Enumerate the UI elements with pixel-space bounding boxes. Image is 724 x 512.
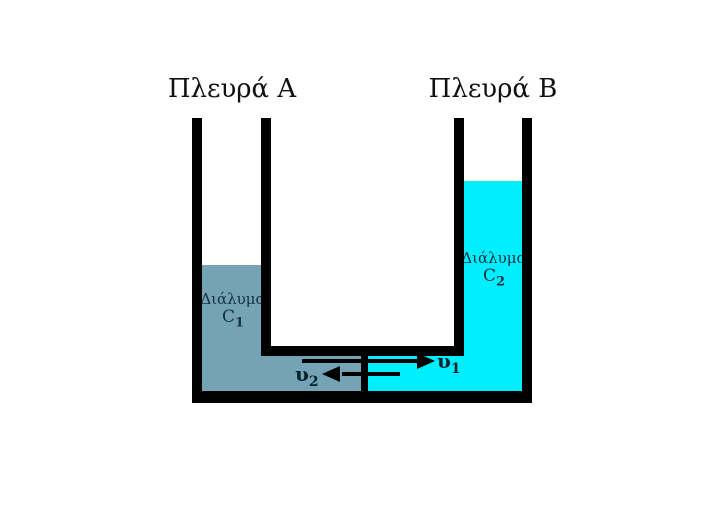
inner-left-wall (261, 118, 271, 356)
side-b-solution-name: Διάλυμα (461, 249, 526, 267)
v2-label: υ2 (295, 362, 319, 386)
side-a-concentration: C1 (222, 307, 244, 327)
v1-label: υ1 (437, 349, 461, 373)
side-b-concentration: C2 (483, 266, 505, 286)
side-a-solution-label: Διάλυμα C1 (196, 291, 270, 328)
outer-right-wall (522, 118, 532, 403)
osmosis-utube-diagram: Πλευρά A Πλευρά B Διάλυμα C1 Διάλυμα C2 … (0, 0, 724, 512)
v1-arrow-right-icon (417, 353, 435, 369)
v2-arrow-left-icon (322, 366, 340, 382)
v2-arrow-shaft (342, 372, 400, 376)
side-a-title: Πλευρά A (152, 74, 312, 104)
bottom-wall (192, 391, 532, 403)
side-a-solution-name: Διάλυμα (200, 290, 265, 308)
outer-left-wall (192, 118, 202, 403)
inner-right-wall (454, 118, 464, 356)
side-b-solution-label: Διάλυμα C2 (457, 250, 531, 287)
v1-arrow-shaft (302, 359, 418, 363)
side-b-title: Πλευρά B (413, 74, 573, 104)
